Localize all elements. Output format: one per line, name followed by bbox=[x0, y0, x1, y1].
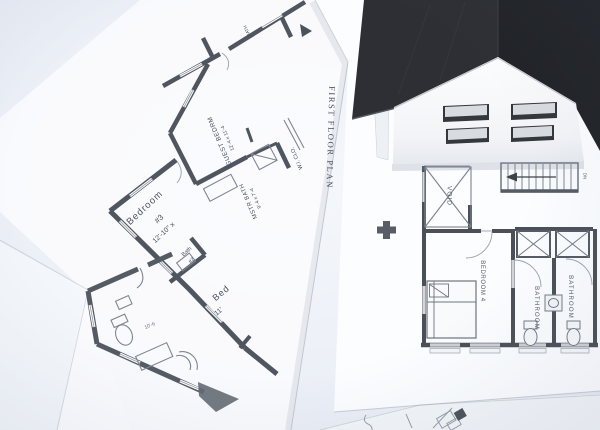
bed bbox=[427, 281, 476, 338]
label-dn: DN bbox=[583, 173, 588, 180]
label-void: VOID bbox=[446, 186, 453, 206]
floorplan-photo-drawing bbox=[0, 0, 600, 430]
label-bedroom4: BEDROOM 4 bbox=[479, 260, 485, 301]
label-bathroom-right: BATHROOM bbox=[567, 275, 573, 319]
photo-stage: FIRST FLOOR PLAN GUEST BEDRM 12'-4 x 11'… bbox=[0, 0, 600, 430]
label-bathroom-left: BATHROOM bbox=[533, 286, 539, 330]
